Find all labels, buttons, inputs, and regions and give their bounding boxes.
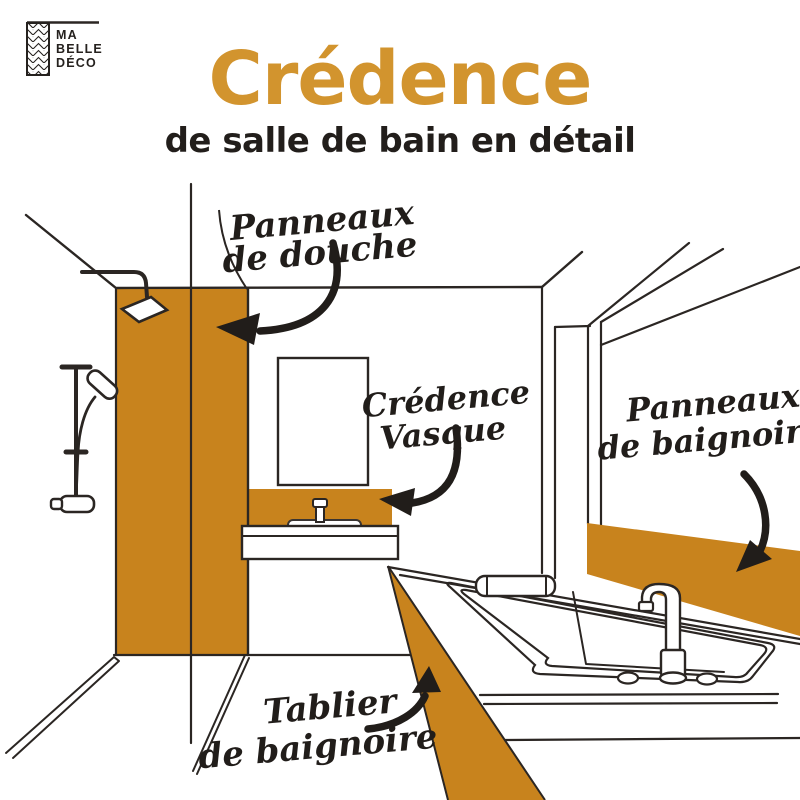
infographic-page: Crédence de salle de bain en détail MA B… [0, 0, 800, 800]
tub-handle-left [618, 673, 638, 684]
hand-shower-icon [85, 368, 120, 402]
right-ceiling-edge [542, 252, 582, 287]
shower-panel-highlight [116, 289, 248, 655]
sink-faucet-body [316, 506, 324, 522]
tub-faucet-spout [639, 602, 653, 611]
window-frame-diagonals [555, 243, 800, 345]
shower-mixer-body [60, 496, 94, 512]
shower-mixer-spout [51, 499, 62, 509]
bathroom-diagram: MA BELLE DÉCO [0, 0, 800, 800]
tub-handle-right [697, 674, 717, 685]
hand-shower-hose [76, 397, 95, 495]
sink-faucet-head [313, 499, 327, 507]
mirror [278, 358, 368, 485]
shower-drain-channel [6, 657, 119, 758]
vanity-counter [242, 526, 398, 559]
brand-logo: MA BELLE DÉCO [27, 23, 103, 76]
tub-deck-front [480, 694, 800, 740]
logo-pattern-bar-icon [27, 23, 49, 75]
brand-line-2: BELLE [56, 42, 103, 56]
brand-line-1: MA [56, 28, 78, 42]
tub-faucet-flange [660, 673, 686, 684]
brand-line-3: DÉCO [56, 55, 97, 70]
arrow-bathtub-panels [744, 474, 766, 551]
annotation-shower-panels: Panneaux de douche [216, 193, 419, 345]
